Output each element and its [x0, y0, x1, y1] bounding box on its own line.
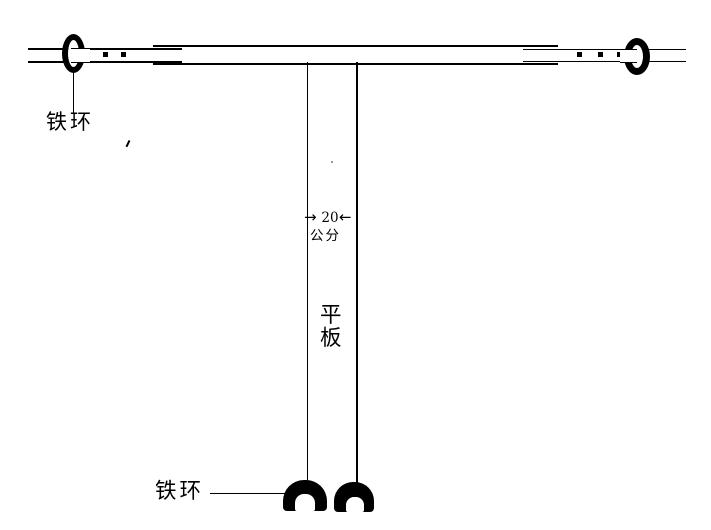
- plate-right-edge-line: [356, 62, 358, 484]
- bottom-ring-leader-line: [210, 493, 285, 494]
- right-ring-rail-slot: [620, 49, 637, 63]
- dimension-value: 20: [320, 211, 340, 225]
- ellipsis-dot: [103, 52, 108, 57]
- bottom-iron-ring-label: 铁环: [155, 481, 204, 503]
- dimension-arrow-left-icon: ←: [339, 210, 352, 225]
- plate-label: 平 板: [320, 305, 342, 350]
- top-iron-ring-label: 铁环: [46, 111, 94, 133]
- rail-left-top-line: [28, 48, 182, 50]
- diagram-canvas: 铁环 → 20 ← 公分 平 板 铁环: [0, 0, 711, 530]
- top-ring-leader-line: [73, 71, 74, 113]
- bottom-right-ring-hole: [346, 497, 364, 512]
- ellipsis-dot: [121, 52, 126, 57]
- ellipsis-dot: [598, 52, 603, 57]
- rail-right-top-line: [523, 49, 686, 51]
- plate-label-char-top: 平: [320, 305, 342, 328]
- ellipsis-dot: [577, 52, 582, 57]
- faint-dot-mark: [331, 161, 333, 163]
- rod-top-line: [153, 45, 558, 47]
- left-ring-rail-slot: [71, 48, 90, 63]
- stray-tick-mark: [126, 140, 130, 147]
- rail-right-bottom-line: [523, 61, 686, 63]
- plate-left-edge-line: [307, 62, 309, 484]
- bottom-left-ring-hole: [295, 494, 315, 511]
- dimension-arrow-right-icon: →: [304, 210, 317, 225]
- dimension-unit: 公分: [310, 229, 341, 243]
- plate-label-char-bottom: 板: [320, 328, 342, 351]
